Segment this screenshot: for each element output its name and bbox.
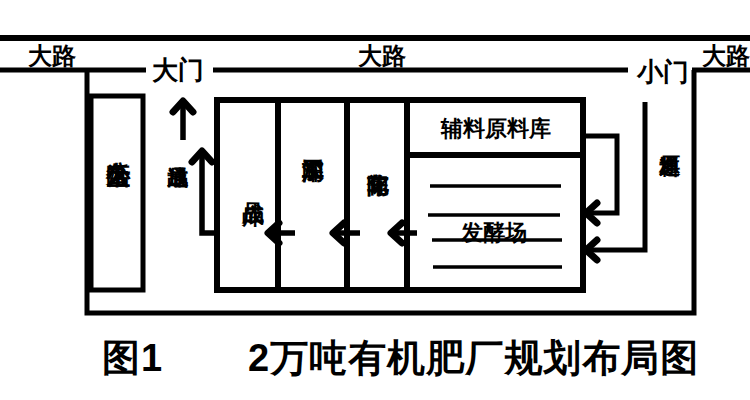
side-gate-label: 小门 bbox=[637, 57, 689, 88]
office-living-label: 办公生活区 bbox=[104, 142, 132, 147]
auxiliary-warehouse-label: 辅料原料库 bbox=[437, 116, 555, 142]
caption-title: 2万吨有机肥厂规划布局图 bbox=[248, 336, 699, 381]
office-living-box bbox=[91, 96, 143, 290]
road-label-right: 大路 bbox=[700, 42, 750, 70]
fermentation-yard-label: 发酵场 bbox=[458, 220, 530, 246]
caption-figure-label: 图1 bbox=[102, 336, 163, 381]
road-label-left: 大路 bbox=[26, 42, 78, 70]
main-gate-label: 大门 bbox=[152, 55, 204, 86]
factory-layout-figure: 大路 大路 大路 大门 小门 办公生活区 成品通道 成品库 深加工车间 陈化车间… bbox=[0, 0, 750, 400]
road-label-center: 大路 bbox=[356, 42, 408, 70]
